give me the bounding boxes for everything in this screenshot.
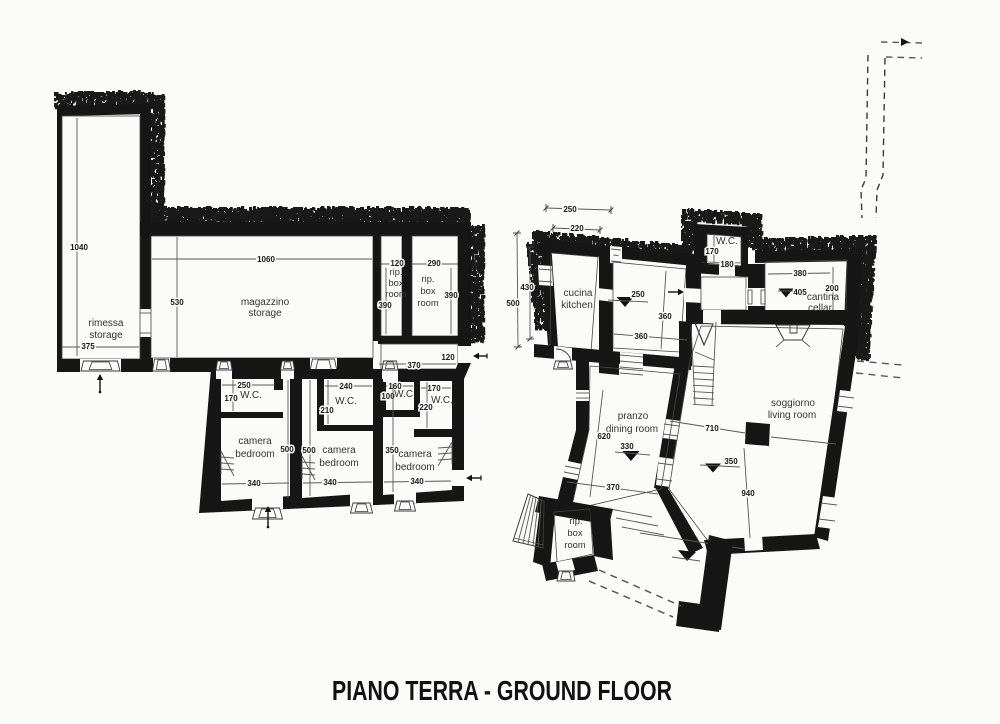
svg-text:290: 290	[427, 259, 441, 268]
svg-text:370: 370	[606, 483, 620, 492]
svg-text:500: 500	[506, 299, 520, 308]
svg-text:W.C.: W.C.	[240, 390, 262, 401]
svg-text:W.C.: W.C.	[431, 395, 453, 406]
svg-text:storage: storage	[248, 308, 282, 319]
svg-text:room: room	[564, 540, 585, 550]
svg-text:240: 240	[339, 382, 353, 391]
svg-text:170: 170	[705, 247, 719, 256]
svg-text:360: 360	[634, 332, 648, 341]
svg-text:1040: 1040	[70, 243, 88, 252]
svg-text:bedroom: bedroom	[395, 462, 434, 473]
svg-text:bedroom: bedroom	[319, 458, 358, 469]
svg-text:380: 380	[793, 269, 807, 278]
svg-text:710: 710	[705, 424, 719, 433]
svg-text:W.C.: W.C.	[394, 389, 416, 400]
svg-text:W.C.: W.C.	[716, 236, 738, 247]
svg-text:500: 500	[302, 446, 316, 455]
svg-text:340: 340	[247, 479, 261, 488]
svg-text:350: 350	[724, 457, 738, 466]
svg-text:camera: camera	[322, 445, 356, 456]
svg-text:250: 250	[237, 381, 251, 390]
svg-text:kitchen: kitchen	[561, 300, 593, 311]
svg-text:rimessa: rimessa	[88, 318, 123, 329]
svg-text:170: 170	[427, 384, 441, 393]
svg-text:rip.: rip.	[570, 516, 583, 526]
svg-text:living room: living room	[768, 410, 816, 421]
svg-text:220: 220	[570, 224, 584, 233]
svg-text:170: 170	[224, 394, 238, 403]
svg-text:210: 210	[320, 406, 334, 415]
svg-text:390: 390	[444, 291, 458, 300]
svg-text:405: 405	[793, 288, 807, 297]
svg-text:180: 180	[720, 260, 734, 269]
svg-text:500: 500	[280, 445, 294, 454]
svg-text:room: room	[417, 298, 438, 308]
svg-text:cellar: cellar	[808, 303, 833, 314]
svg-text:330: 330	[620, 442, 634, 451]
svg-text:530: 530	[170, 298, 184, 307]
svg-text:storage: storage	[89, 330, 123, 341]
svg-text:120: 120	[441, 353, 455, 362]
svg-text:940: 940	[741, 489, 755, 498]
svg-text:390: 390	[378, 301, 392, 310]
svg-text:370: 370	[407, 361, 421, 370]
svg-text:box: box	[421, 286, 436, 296]
svg-text:250: 250	[563, 205, 577, 214]
svg-text:620: 620	[597, 432, 611, 441]
svg-text:soggiorno: soggiorno	[771, 398, 815, 409]
svg-text:magazzino: magazzino	[241, 297, 290, 308]
svg-text:camera: camera	[398, 449, 432, 460]
svg-text:bedroom: bedroom	[235, 449, 274, 460]
svg-text:430: 430	[520, 283, 534, 292]
svg-text:dining room: dining room	[606, 424, 658, 435]
svg-text:250: 250	[631, 290, 645, 299]
svg-text:cantina: cantina	[807, 292, 840, 303]
svg-text:rip.: rip.	[390, 267, 403, 277]
svg-text:room: room	[385, 289, 406, 299]
svg-text:rip.: rip.	[422, 274, 435, 284]
svg-text:360: 360	[658, 312, 672, 321]
svg-text:cucina: cucina	[564, 288, 593, 299]
svg-text:340: 340	[410, 477, 424, 486]
svg-text:box: box	[389, 278, 404, 288]
svg-text:375: 375	[81, 342, 95, 351]
svg-text:W.C.: W.C.	[335, 396, 357, 407]
svg-text:350: 350	[385, 446, 399, 455]
svg-text:pranzo: pranzo	[618, 411, 649, 422]
svg-text:camera: camera	[238, 436, 272, 447]
svg-text:box: box	[568, 528, 583, 538]
svg-text:PIANO TERRA - GROUND FLOOR: PIANO TERRA - GROUND FLOOR	[332, 675, 672, 706]
svg-text:1060: 1060	[257, 255, 275, 264]
svg-text:340: 340	[323, 478, 337, 487]
